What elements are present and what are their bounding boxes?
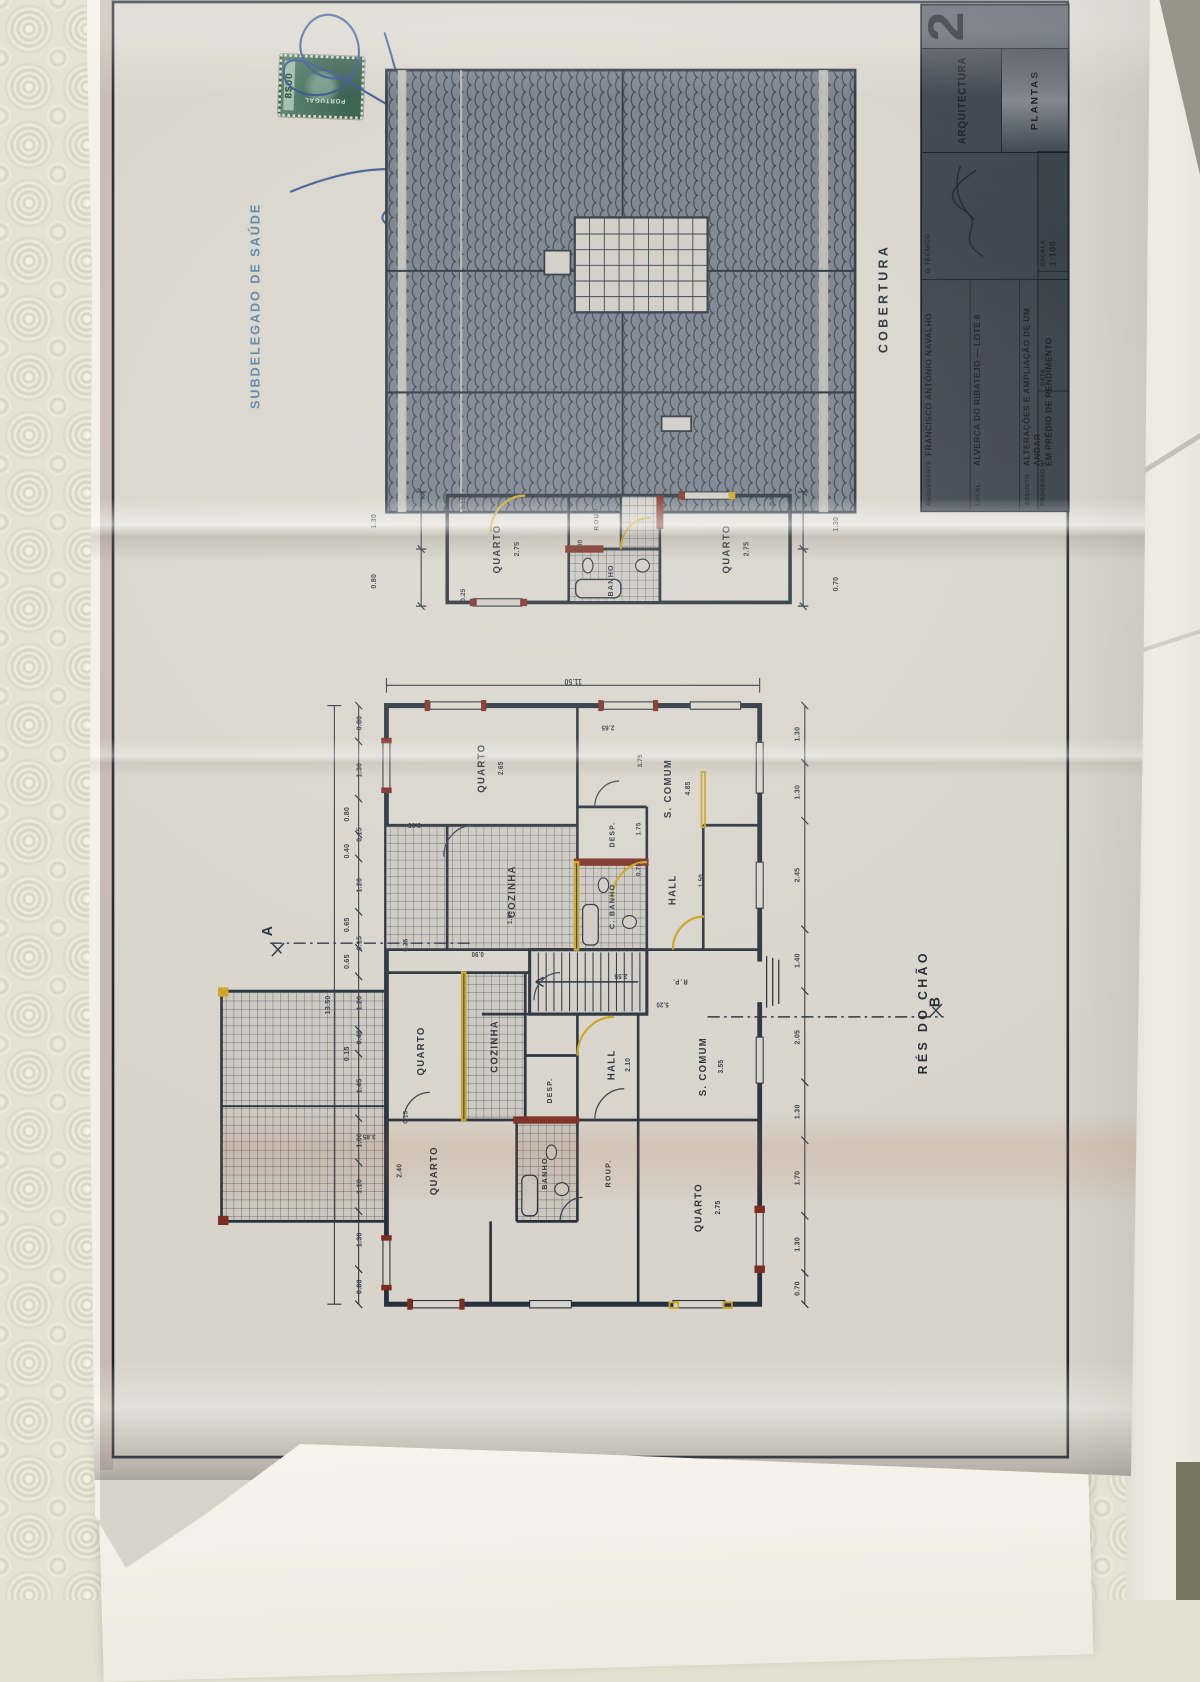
photo-of-architectural-drawing: { "colors":{"paper":"#d8d4cb","ink":"#2b… [0, 0, 1200, 1600]
tecnico-signature [939, 159, 1000, 270]
field-local: LOCAL ALVERCA DO RIBATEJO — LOTE 8 [971, 280, 1020, 510]
room-label: S. COMUM [663, 759, 673, 818]
dim-label: 2.75 [512, 542, 521, 557]
dim-label: 0.15 [459, 496, 467, 509]
dim-label: 3.75 [636, 754, 644, 767]
dim-label: 0.15 [402, 1111, 410, 1124]
room-label: BANHO [606, 564, 615, 596]
field-label: LOCAL [975, 471, 981, 506]
title-label: COBERTURA [876, 244, 891, 353]
dim-label: 1.30 [793, 1237, 802, 1252]
dim-label: 1.40 [793, 953, 802, 968]
dim-label: 0.75 [634, 863, 642, 876]
dim-label: 1.30 [793, 727, 802, 742]
dim-label: 0.70 [831, 577, 840, 592]
room-label: HALL [668, 874, 678, 905]
dim-label: 1.45 [354, 1079, 363, 1094]
data-cell: DATA [1038, 271, 1068, 391]
dim-label: 0.15 [354, 936, 363, 951]
title-label: RÉS DO CHÃO [915, 950, 930, 1074]
dim-label: 0.65 [342, 917, 351, 932]
room-label: ROUP. [593, 505, 601, 531]
processo-cell: PROCESSO Nº [1038, 391, 1068, 511]
room-label: BANHO [540, 1157, 549, 1189]
dim-label: 1.30 [793, 785, 802, 800]
title-block: REQUERENTE FRANCISCO ANTÓNIO NAVALHO LOC… [920, 4, 1069, 512]
escala-cell: ESCALA1:100 [1038, 151, 1068, 271]
dim-label: 0.90 [471, 950, 483, 958]
dim-label: 2.65 [497, 761, 505, 775]
dim-label: 0.15 [354, 827, 363, 842]
room-label: ROUP. [603, 1159, 612, 1187]
sheet-number: 2 [922, 6, 1068, 48]
dim-label: 0.65 [342, 954, 351, 969]
discipline-label: ARQUITECTURA [922, 56, 1001, 144]
dim-label: 2.40 [396, 1164, 404, 1178]
room-label: QUARTO [416, 1026, 426, 1075]
room-label: S. COMUM [698, 1037, 708, 1096]
dim-label: 2.65 [601, 724, 614, 732]
room-label: DESP. [546, 1078, 554, 1104]
dim-label: 0.1 [768, 496, 776, 505]
dim-label: 1.30 [793, 1104, 802, 1119]
room-label: QUARTO [492, 524, 502, 573]
dim-label: 1.30 [369, 514, 378, 529]
room-label: QUARTO [477, 744, 487, 793]
dim-label: 5.20 [656, 1001, 668, 1009]
dim-label: 0.70 [793, 1281, 802, 1296]
dim-label: 1.20 [354, 878, 363, 893]
dim-label: 0.80 [369, 574, 378, 589]
dim-label: 1.10 [354, 1179, 363, 1194]
dim-label: 2.45 [793, 868, 802, 883]
dim-label: 1.00 [506, 911, 514, 924]
dim-label: 1.30 [354, 1232, 363, 1247]
drawing-plane: SUBDELEGADO DE SAÚDE 8$00 PORTUGAL [100, 0, 1142, 1470]
room-label: COZINHA [490, 1020, 500, 1073]
room-label: R.P. [672, 978, 688, 986]
room-label: HALL [607, 1049, 617, 1080]
dim-label: 0.25 [402, 938, 410, 951]
table-corner-dark [1176, 1462, 1200, 1600]
room-label: QUARTO [694, 1183, 704, 1232]
dim-label: 3.85 [363, 1132, 376, 1140]
dim-label: 2.05 [793, 1030, 802, 1045]
dim-label: 0.80 [354, 1279, 363, 1294]
room-label: QUARTO [721, 524, 731, 573]
dim-label: 2.10 [624, 1058, 632, 1072]
field-requerente: REQUERENTE FRANCISCO ANTÓNIO NAVALHO [922, 280, 971, 510]
field-label: ASSUNTO [1024, 471, 1030, 506]
dim-label: 1.30 [831, 517, 840, 532]
dim-label: 0.40 [354, 1030, 363, 1045]
field-value: FRANCISCO ANTÓNIO NAVALHO [925, 313, 936, 456]
marker-label: B [926, 997, 943, 1007]
title-block-bottom-strip: PROCESSO Nº DATA ESCALA1:100 [1037, 151, 1067, 510]
dim-label: 1.00 [576, 540, 584, 553]
field-value: ALVERCA DO RIBATEJO — LOTE 8 [973, 314, 984, 466]
room-label: DESP. [608, 822, 616, 848]
dim-label: 1.70 [793, 1171, 802, 1186]
room-label: C. BANHO [608, 884, 617, 929]
dim-label: 1.30 [354, 763, 363, 778]
content-label: PLANTAS [1001, 49, 1068, 152]
dim-label: 0.15 [342, 1046, 351, 1061]
marker-label: A [259, 926, 276, 936]
dim-label: 2.75 [714, 1201, 722, 1215]
dim-label: 13.50 [323, 995, 332, 1014]
dim-label: 0.80 [354, 716, 363, 731]
tecnico-label: O TÉCNICO [922, 153, 935, 279]
dim-label: 11.50 [564, 677, 581, 686]
dim-label: 0.40 [342, 844, 351, 859]
dim-label: 3.55 [717, 1060, 725, 1074]
dim-label: 1.75 [634, 822, 642, 835]
dim-label: 4.85 [684, 782, 692, 796]
room-label: QUARTO [429, 1146, 439, 1195]
dim-label: 2.55 [614, 972, 627, 980]
title-block-discipline: ARQUITECTURA PLANTAS [922, 48, 1068, 152]
dim-label: 1.20 [354, 996, 363, 1011]
dim-label: 1.50 [697, 874, 705, 887]
drawing-sheet: SUBDELEGADO DE SAÚDE 8$00 PORTUGAL [0, 0, 1200, 1600]
dim-label: 0.25 [459, 588, 467, 601]
dim-label: 2.75 [741, 542, 750, 557]
field-label: REQUERENTE [926, 460, 932, 505]
dim-label: 3.95 [408, 821, 421, 829]
dim-label: 0.80 [342, 807, 351, 822]
